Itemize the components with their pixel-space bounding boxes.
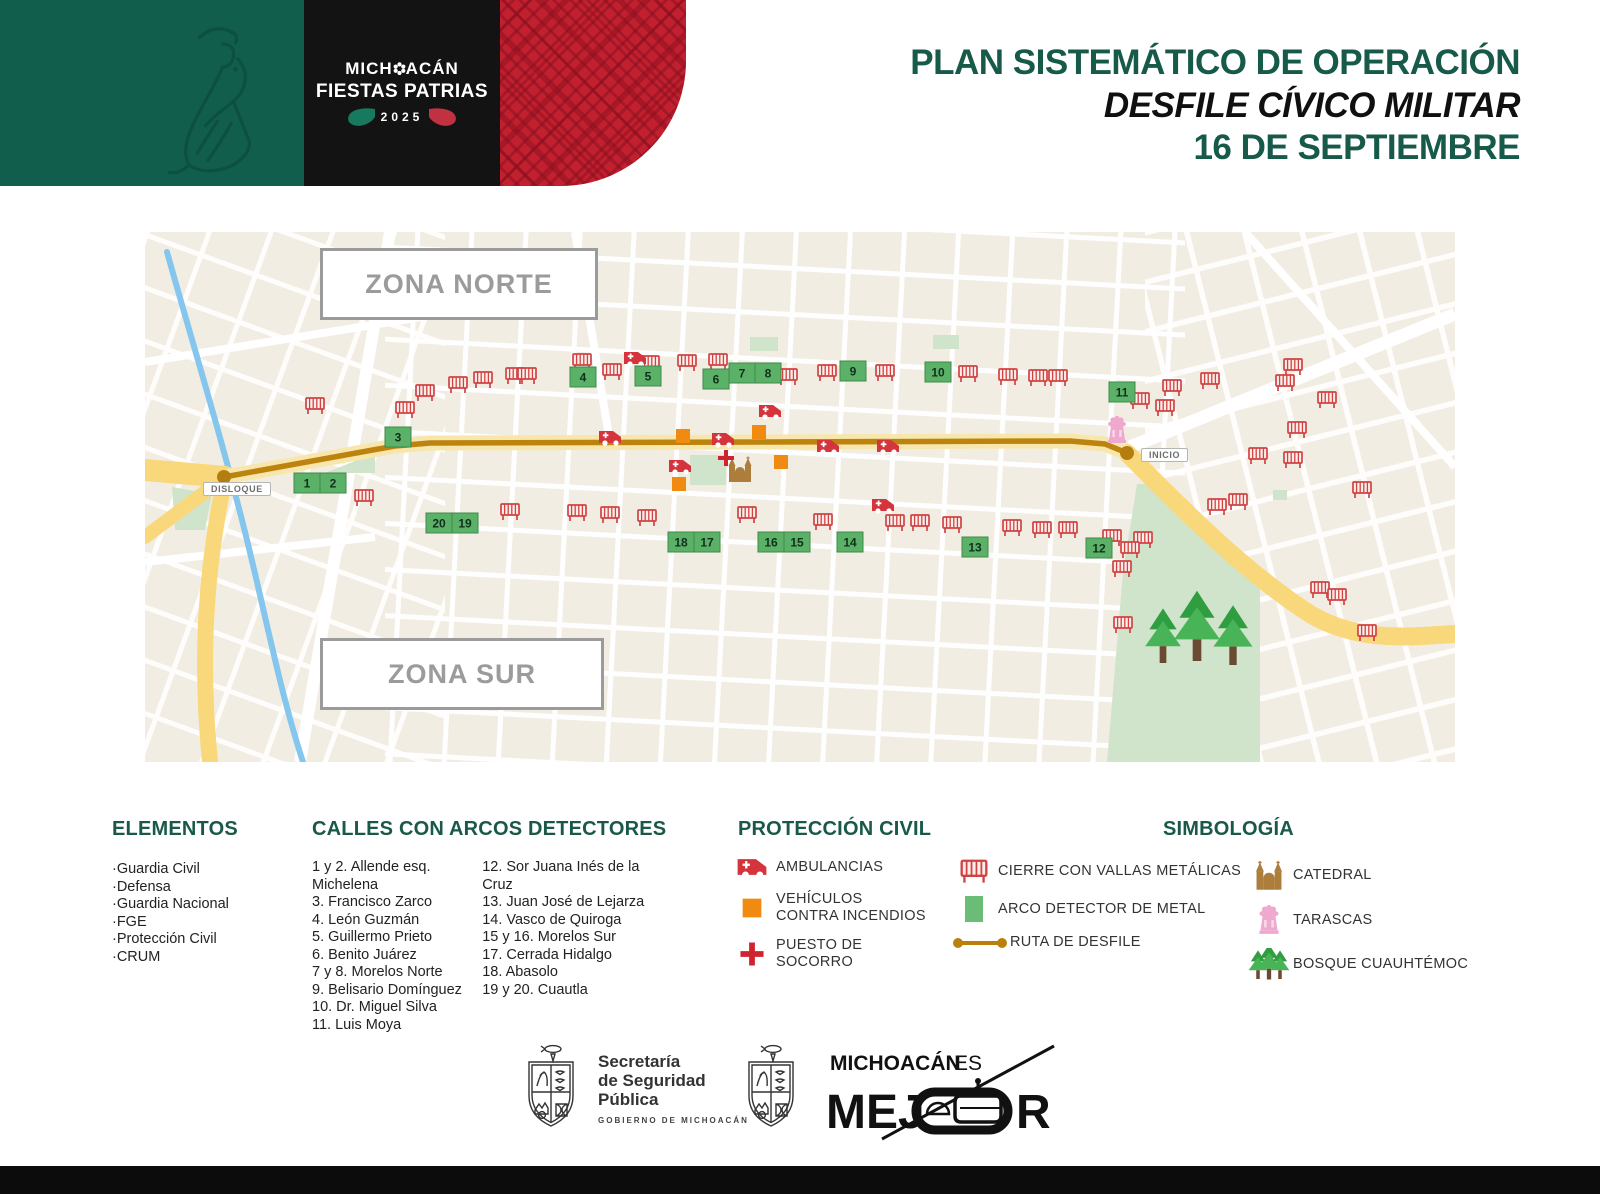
disloque-label: DISLOQUE <box>203 482 271 496</box>
legend-simb-title: SIMBOLOGÍA <box>1163 818 1294 841</box>
svg-text:8: 8 <box>765 367 772 381</box>
puesto-label: PUESTO DE SOCORRO <box>776 937 938 971</box>
arco-marker-11: 11 <box>1109 382 1135 402</box>
svg-text:19: 19 <box>458 517 472 531</box>
brand-name-pre: MICH <box>345 59 392 79</box>
arco-marker-6: 6 <box>703 369 729 389</box>
legend-calles-title: CALLES CON ARCOS DETECTORES <box>312 818 672 841</box>
list-item: 3. Francisco Zarco <box>312 894 482 912</box>
arco-marker-15: 15 <box>784 532 810 552</box>
zone-south-label: ZONA SUR <box>320 638 604 710</box>
cable-car-icon <box>955 1078 1001 1122</box>
list-item: 6. Benito Juárez <box>312 947 482 965</box>
svg-text:2: 2 <box>330 477 337 491</box>
fire-vehicle-marker <box>676 429 690 443</box>
ssp-wordmark: Secretaría de Seguridad Pública GOBIERNO… <box>598 1052 749 1125</box>
svg-text:17: 17 <box>700 536 714 550</box>
ruta-label: RUTA DE DESFILE <box>1010 934 1141 951</box>
arco-marker-17: 17 <box>694 532 720 552</box>
flower-icon <box>393 62 406 75</box>
header-green-panel <box>0 0 304 186</box>
bosque-label: BOSQUE CUAUHTÉMOC <box>1293 956 1468 973</box>
list-item: 11. Luis Moya <box>312 1017 482 1035</box>
brand-subtitle: FIESTAS PATRIAS <box>316 81 488 103</box>
list-item: ·FGE <box>112 914 322 932</box>
arco-marker-12: 12 <box>1086 538 1112 558</box>
red-ribbon-icon <box>429 106 459 128</box>
ambulancias-label: AMBULANCIAS <box>776 859 883 876</box>
svg-text:ES: ES <box>954 1052 982 1075</box>
arco-marker-10: 10 <box>925 362 951 382</box>
inicio-label: INICIO <box>1141 448 1188 462</box>
svg-text:6: 6 <box>713 373 720 387</box>
michoacan-es-mejor-logo: MICHOACÁN ES MEJ R <box>812 1036 1068 1142</box>
barrier-icon <box>950 858 998 884</box>
ssp-line1: Secretaría <box>598 1052 749 1071</box>
ssp-subtitle: GOBIERNO DE MICHOACÁN <box>598 1116 749 1125</box>
svg-text:12: 12 <box>1092 542 1106 556</box>
poster-title: PLAN SISTEMÁTICO DE OPERACIÓN DESFILE CÍ… <box>910 42 1520 170</box>
svg-text:MICHOACÁN: MICHOACÁN <box>830 1052 961 1075</box>
vehiculos-label: VEHÍCULOS CONTRA INCENDIOS <box>776 891 926 925</box>
route-end-dot <box>1120 446 1134 460</box>
arco-marker-9: 9 <box>840 361 866 381</box>
svg-text:7: 7 <box>739 367 746 381</box>
header-pattern-panel <box>500 0 686 186</box>
svg-text:3: 3 <box>395 431 402 445</box>
ambulance-icon <box>728 855 776 879</box>
zone-north-label: ZONA NORTE <box>320 248 598 320</box>
fire-vehicle-marker <box>774 455 788 469</box>
cierre-label: CIERRE CON VALLAS METÁLICAS <box>998 863 1241 880</box>
svg-text:18: 18 <box>674 536 688 550</box>
legend-pc-title: PROTECCIÓN CIVIL <box>738 818 938 841</box>
svg-text:16: 16 <box>764 536 778 550</box>
list-item: 5. Guillermo Prieto <box>312 929 482 947</box>
svg-text:5: 5 <box>645 370 652 384</box>
arco-marker-4: 4 <box>570 367 596 387</box>
green-ribbon-icon <box>345 106 375 128</box>
list-item: 15 y 16. Morelos Sur <box>482 929 672 947</box>
header-logo-panel: MICH ACÁN FIESTAS PATRIAS 2025 <box>304 0 500 186</box>
svg-text:20: 20 <box>432 517 446 531</box>
list-item: ·Guardia Civil <box>112 861 322 879</box>
catedral-label: CATEDRAL <box>1293 867 1372 884</box>
title-line-3: 16 DE SEPTIEMBRE <box>910 127 1520 170</box>
calles-col1: 1 y 2. Allende esq. Michelena3. Francisc… <box>312 859 482 1034</box>
arco-marker-18: 18 <box>668 532 694 552</box>
elementos-list: ·Guardia Civil·Defensa·Guardia Nacional·… <box>112 861 322 966</box>
list-item: ·Defensa <box>112 879 322 897</box>
aid-cross-icon <box>728 941 776 967</box>
arco-marker-3: 3 <box>385 427 411 447</box>
list-item: ·CRUM <box>112 949 322 967</box>
tarascas-icon <box>1245 904 1293 936</box>
list-item: 17. Cerrada Hidalgo <box>482 947 672 965</box>
list-item: 13. Juan José de Lejarza <box>482 894 672 912</box>
title-line-1: PLAN SISTEMÁTICO DE OPERACIÓN <box>910 42 1520 85</box>
vehiculos-line2: CONTRA INCENDIOS <box>776 908 926 925</box>
arco-marker-1: 1 <box>294 473 320 493</box>
route-line-icon <box>950 936 1010 950</box>
arco-marker-13: 13 <box>962 537 988 557</box>
svg-text:R: R <box>1016 1086 1051 1139</box>
list-item: 12. Sor Juana Inés de la Cruz <box>482 859 672 894</box>
list-item: 7 y 8. Morelos Norte <box>312 964 482 982</box>
header-banner: MICH ACÁN FIESTAS PATRIAS 2025 <box>0 0 1600 186</box>
legend-elementos: ELEMENTOS ·Guardia Civil·Defensa·Guardia… <box>112 818 322 966</box>
list-item: 19 y 20. Cuautla <box>482 982 672 1000</box>
arco-marker-7: 7 <box>729 363 755 383</box>
svg-text:11: 11 <box>1116 386 1129 400</box>
ssp-line3: Pública <box>598 1090 749 1109</box>
arco-marker-14: 14 <box>837 532 863 552</box>
bottom-bar <box>0 1166 1600 1194</box>
vehiculos-line1: VEHÍCULOS <box>776 891 926 908</box>
bosque-icon <box>1245 948 1293 980</box>
tarascas-marker <box>1108 416 1126 443</box>
poster-page: MICH ACÁN FIESTAS PATRIAS 2025 <box>0 0 1600 1194</box>
svg-text:10: 10 <box>931 366 945 380</box>
list-item: 10. Dr. Miguel Silva <box>312 999 482 1017</box>
svg-text:15: 15 <box>790 536 804 550</box>
arco-marker-8: 8 <box>755 363 781 383</box>
legend-proteccion-civil: PROTECCIÓN CIVIL AMBULANCIAS VEHÍCULOS C… <box>728 818 938 983</box>
fire-vehicle-marker <box>672 477 686 491</box>
city-map: 1234567891011121314151617181920 ZONA NOR… <box>145 232 1455 762</box>
list-item: 18. Abasolo <box>482 964 672 982</box>
brand-year: 2025 <box>381 110 424 124</box>
svg-text:14: 14 <box>843 536 857 550</box>
fire-vehicle-icon <box>728 896 776 920</box>
svg-text:13: 13 <box>968 541 982 555</box>
title-line-2: DESFILE CÍVICO MILITAR <box>910 85 1520 128</box>
calles-col2: 12. Sor Juana Inés de la Cruz13. Juan Jo… <box>482 859 672 1034</box>
list-item: ·Protección Civil <box>112 931 322 949</box>
michoacan-crest-icon <box>742 1042 800 1134</box>
ssp-line2: de Seguridad <box>598 1071 749 1090</box>
arco-icon <box>950 896 998 922</box>
list-item: 9. Belisario Domínguez <box>312 982 482 1000</box>
fire-vehicle-marker <box>752 425 766 439</box>
arco-marker-16: 16 <box>758 532 784 552</box>
brand-name-post: ACÁN <box>406 59 459 79</box>
arco-marker-2: 2 <box>320 473 346 493</box>
svg-text:4: 4 <box>580 371 587 385</box>
list-item: ·Guardia Nacional <box>112 896 322 914</box>
legend-simbologia: SIMBOLOGÍA CIERRE CON VALLAS METÁLICAS A… <box>950 818 1470 992</box>
dancer-icon <box>130 14 290 184</box>
michoacan-crest-icon <box>522 1042 580 1134</box>
arco-label: ARCO DETECTOR DE METAL <box>998 901 1205 918</box>
list-item: 14. Vasco de Quiroga <box>482 912 672 930</box>
tarascas-label: TARASCAS <box>1293 912 1372 929</box>
brand-name: MICH ACÁN <box>345 59 459 79</box>
legend-elementos-title: ELEMENTOS <box>112 818 322 841</box>
arco-marker-19: 19 <box>452 513 478 533</box>
legend-calles: CALLES CON ARCOS DETECTORES 1 y 2. Allen… <box>312 818 672 1034</box>
catedral-icon <box>1245 858 1293 892</box>
list-item: 4. León Guzmán <box>312 912 482 930</box>
svg-text:MEJ: MEJ <box>826 1086 925 1139</box>
legend: ELEMENTOS ·Guardia Civil·Defensa·Guardia… <box>0 800 1600 1030</box>
arco-marker-20: 20 <box>426 513 452 533</box>
svg-text:1: 1 <box>304 477 311 491</box>
svg-text:9: 9 <box>850 365 857 379</box>
arco-marker-5: 5 <box>635 366 661 386</box>
list-item: 1 y 2. Allende esq. Michelena <box>312 859 482 894</box>
